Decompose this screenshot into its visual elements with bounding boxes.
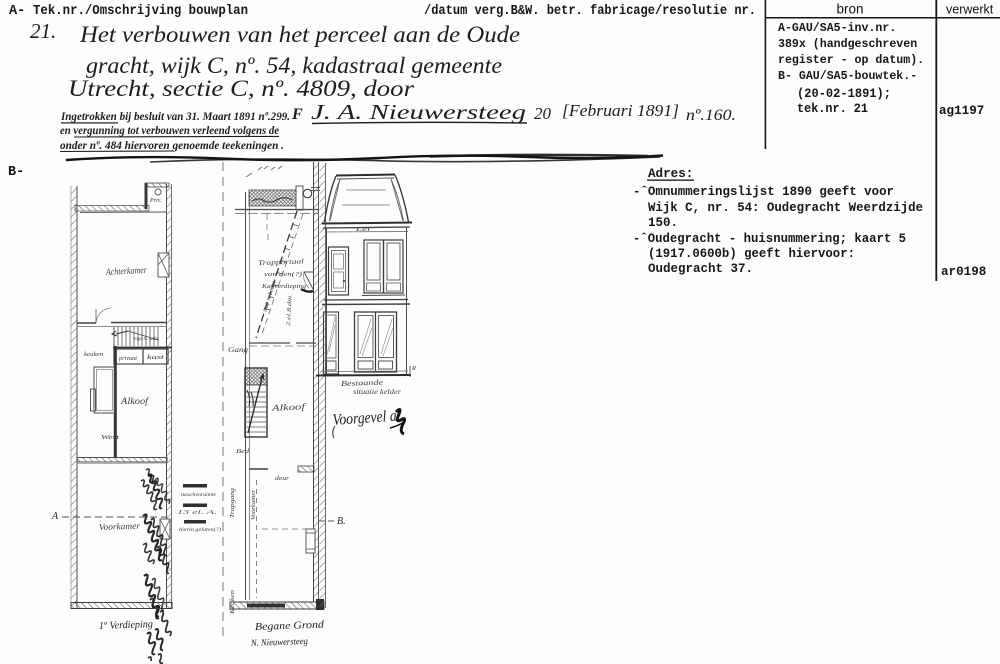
svg-text:389x (handgeschreven: 389x (handgeschreven (778, 38, 917, 51)
svg-text:[Februari 1891]: [Februari 1891] (562, 101, 679, 120)
svg-text:13 el. A.: 13 el. A. (177, 510, 217, 516)
svg-text:Wijk C, nr. 54: Oudegracht Wee: Wijk C, nr. 54: Oudegracht Weerdzijde (648, 201, 923, 215)
svg-text:N. Nieuwersteeg: N. Nieuwersteeg (250, 637, 308, 649)
svg-text:B- GAU/SA5-bouwtek.-: B- GAU/SA5-bouwtek.- (778, 70, 917, 83)
svg-text:Bed: Bed (236, 448, 250, 455)
svg-text:Priv.: Priv. (149, 198, 161, 204)
svg-text:Trapgang: Trapgang (230, 488, 236, 518)
svg-text:(20-02-1891);: (20-02-1891); (797, 86, 891, 101)
svg-text:R: R (411, 365, 416, 372)
svg-text:1º Verdieping: 1º Verdieping (99, 619, 153, 632)
svg-text:Trapportaal: Trapportaal (258, 257, 304, 267)
svg-text:2.el.8.dm: 2.el.8.dm (286, 295, 294, 326)
svg-text:B-: B- (8, 165, 24, 180)
svg-text:hierin gelaten(?): hierin gelaten(?) (179, 526, 221, 533)
svg-text:deur: deur (275, 476, 290, 482)
svg-text:Tek.nr./Omschrijving bouwplan: Tek.nr./Omschrijving bouwplan (33, 4, 248, 19)
svg-text:/datum verg.B&W. betr. fabrica: /datum verg.B&W. betr. fabricage/resolut… (424, 4, 756, 19)
svg-text:150.: 150. (648, 216, 678, 230)
svg-text:Ingetrokken bij besluit van 31: Ingetrokken bij besluit van 31. Maart 18… (60, 109, 290, 123)
svg-text:privaat: privaat (118, 356, 137, 362)
svg-text:Alkoof: Alkoof (120, 396, 150, 406)
svg-text:20: 20 (534, 104, 552, 123)
svg-text:nº.160.: nº.160. (686, 107, 736, 124)
svg-text:gracht, wijk C, nº. 54, kadast: gracht, wijk C, nº. 54, kadastraal gemee… (86, 53, 502, 78)
svg-text:bron: bron (836, 2, 863, 17)
svg-text:Het verbouwen van het perceel: Het verbouwen van het perceel aan de Oud… (79, 22, 520, 47)
svg-text:Voorgevel a: Voorgevel a (332, 408, 397, 429)
svg-text:ag1197: ag1197 (939, 104, 984, 118)
svg-text:Utrecht, sectie C, nº. 4809, d: Utrecht, sectie C, nº. 4809, door (68, 76, 415, 101)
svg-text:onder nº. 484 hiervoren genoem: onder nº. 484 hiervoren genoemde teekeni… (60, 138, 284, 152)
svg-text:Kapverdieping: Kapverdieping (261, 283, 307, 290)
svg-text:Gang: Gang (228, 346, 249, 354)
svg-text:A-: A- (9, 4, 25, 19)
svg-text:van den(?): van den(?) (264, 271, 302, 278)
svg-text:trap n. zold.: trap n. zold. (133, 336, 160, 342)
svg-text:ar0198: ar0198 (941, 265, 986, 279)
svg-text:A-GAU/SA5-inv.nr.: A-GAU/SA5-inv.nr. (778, 22, 896, 35)
svg-text:tek.nr. 21: tek.nr. 21 (797, 102, 868, 116)
svg-text:F: F (291, 106, 303, 123)
svg-text:J. A. Nieuwersteeg: J. A. Nieuwersteeg (311, 100, 526, 124)
svg-text:Oudegracht 37.: Oudegracht 37. (648, 262, 753, 276)
svg-text:en vergunning tot verbouwen ve: en vergunning tot verbouwen verleend vol… (60, 123, 280, 137)
svg-text:keuken: keuken (84, 352, 103, 358)
svg-text:-ˆOmnummeringslijst 1890 geeft: -ˆOmnummeringslijst 1890 geeft voor (633, 185, 894, 199)
svg-text:West: West (101, 434, 119, 441)
svg-text:-ˆOudegracht - huisnummering;: -ˆOudegracht - huisnummering; kaart 5 (633, 232, 906, 246)
svg-text:Begane Grond: Begane Grond (255, 620, 325, 633)
svg-text:Alkoof: Alkoof (270, 401, 307, 413)
svg-text:Achterkamer: Achterkamer (105, 266, 148, 278)
svg-text:(1917.0600b) geeft hiervoor:: (1917.0600b) geeft hiervoor: (648, 247, 855, 261)
svg-text:situatie kelder: situatie kelder (353, 387, 401, 396)
svg-text:kast: kast (147, 355, 165, 361)
svg-text:register - op datum).: register - op datum). (778, 54, 924, 67)
svg-text:Voorkamer: Voorkamer (99, 521, 141, 532)
svg-text:21.: 21. (30, 19, 56, 43)
svg-text:verwerkt: verwerkt (946, 3, 994, 17)
svg-text:Keuken: Keuken (230, 590, 236, 615)
svg-text:tusschenruimte: tusschenruimte (181, 492, 217, 498)
svg-text:A: A (51, 511, 59, 522)
svg-text:Adres:: Adres: (648, 167, 693, 181)
svg-text:B.: B. (337, 516, 346, 527)
